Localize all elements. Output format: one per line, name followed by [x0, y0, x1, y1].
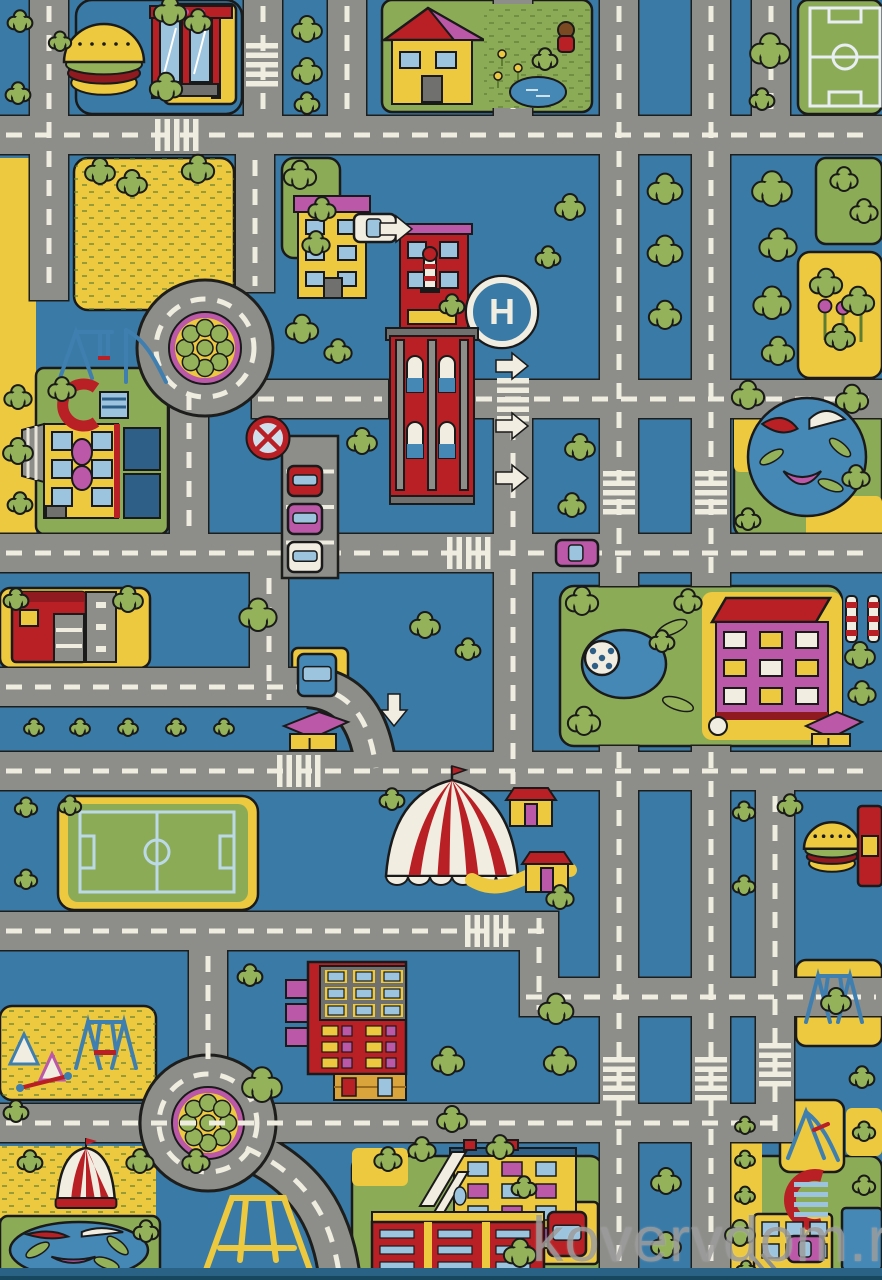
tent-scallop — [430, 876, 452, 885]
tree-center — [315, 203, 329, 217]
crosswalk-bar — [695, 1095, 727, 1101]
window — [306, 272, 324, 286]
tree-center — [249, 607, 268, 626]
tree-center — [219, 723, 229, 733]
burger-stand-2 — [858, 806, 882, 886]
school-roof — [712, 598, 830, 622]
window — [52, 460, 72, 478]
br-blue-patch — [842, 1208, 882, 1270]
seed — [839, 834, 843, 838]
arch-hatch — [794, 1182, 828, 1187]
crosswalk-bar — [315, 755, 321, 787]
crosswalk-bar — [246, 53, 278, 59]
right-yellow-block — [798, 252, 882, 378]
crosswalk-bar — [695, 481, 727, 487]
crosswalk-bar — [603, 1057, 635, 1063]
tree-center — [818, 276, 834, 292]
tent-scallop — [408, 876, 430, 885]
tree-center — [740, 1191, 750, 1201]
stand-window — [862, 836, 878, 856]
tree-center — [292, 168, 308, 184]
tree-center — [125, 177, 140, 192]
seed — [813, 834, 817, 838]
seed — [90, 42, 94, 46]
tree-center — [189, 1155, 203, 1169]
school-window — [760, 632, 782, 648]
boulevard-a-top — [600, 0, 638, 586]
tree-center — [740, 388, 756, 404]
window — [400, 52, 420, 68]
tree-center — [850, 294, 866, 310]
tree-center — [858, 1126, 869, 1137]
crosswalk-bar — [246, 81, 278, 87]
window — [496, 1230, 530, 1238]
tree-center — [294, 322, 310, 338]
window — [328, 972, 344, 981]
teddy-body — [558, 36, 574, 52]
dome — [423, 247, 437, 261]
tree-center — [301, 98, 313, 110]
car-glass — [553, 1225, 581, 1240]
arch-hatch — [794, 1202, 828, 1207]
window — [92, 460, 112, 478]
crosswalk-bar — [759, 1072, 791, 1078]
tree-center — [738, 806, 749, 817]
tree-center — [738, 880, 749, 891]
seed — [78, 42, 82, 46]
crosswalk-bar — [695, 471, 727, 477]
crosswalk-bar — [603, 471, 635, 477]
pilaster — [114, 424, 120, 518]
barrier-stripe — [868, 630, 879, 636]
tree-center — [742, 514, 754, 526]
window — [762, 1222, 779, 1236]
window — [386, 1026, 396, 1036]
tree-center — [542, 252, 554, 264]
arch-hatch — [794, 1192, 828, 1197]
window — [366, 1058, 382, 1068]
tree-center — [54, 36, 65, 47]
tree-center — [837, 173, 851, 187]
barrier-stripe — [846, 630, 857, 636]
tree-center — [386, 794, 398, 806]
tree-center — [445, 1113, 460, 1128]
crosswalk-bar — [155, 119, 161, 151]
tree-center — [20, 874, 31, 885]
helipad-letter: H — [489, 291, 515, 332]
tree-center — [656, 243, 673, 260]
crosswalk-bar — [603, 490, 635, 496]
window — [468, 1184, 488, 1198]
window — [786, 1222, 803, 1236]
barrier-stripe — [868, 602, 879, 608]
window — [536, 1162, 556, 1176]
crosswalk-bar — [603, 500, 635, 506]
tree-center — [446, 300, 458, 312]
tree-center — [121, 593, 136, 608]
annex-window — [378, 1078, 392, 1096]
school-window — [760, 688, 782, 704]
base — [420, 288, 440, 293]
tent-kiosk-1 — [506, 788, 556, 826]
tower — [424, 258, 436, 288]
window — [52, 432, 72, 450]
window — [338, 246, 356, 260]
tree-center — [563, 201, 578, 216]
tree-center — [762, 180, 782, 200]
car-br-house — [788, 1236, 824, 1262]
window — [810, 1222, 827, 1236]
flower-petal — [211, 325, 228, 342]
gable-window — [454, 1187, 466, 1205]
barrier-stripe — [846, 616, 857, 622]
driveway-mark — [96, 602, 106, 608]
arch-window-lower — [439, 378, 455, 392]
ball-patch — [590, 648, 596, 654]
door — [422, 76, 442, 102]
car-glass — [303, 667, 331, 681]
crosswalk-bar — [246, 43, 278, 49]
crosswalk-bar — [695, 1086, 727, 1092]
arch-window-lower — [407, 378, 423, 392]
tree-center — [20, 802, 31, 813]
tree-center — [756, 94, 768, 106]
crosswalk-bar — [497, 397, 529, 403]
base — [390, 496, 474, 504]
tree-center — [553, 891, 567, 905]
flower-petal — [214, 1100, 231, 1117]
crosswalk-bar — [759, 1062, 791, 1068]
tree-center — [659, 1175, 674, 1190]
boat-pond — [748, 398, 866, 516]
car-bottom-patch — [548, 1212, 586, 1256]
tree-center — [681, 595, 695, 609]
tree-center — [856, 1072, 868, 1084]
seed — [114, 42, 118, 46]
tree-center — [853, 649, 868, 664]
tree-center — [565, 499, 579, 513]
rug-product-photo: H kovervdom.ru — [0, 0, 882, 1280]
tree-center — [14, 16, 26, 28]
tree-center — [10, 594, 22, 606]
barrier-stripe — [846, 602, 857, 608]
tent-scallop — [386, 876, 408, 885]
school-window — [796, 688, 818, 704]
crosswalk-bar — [494, 915, 500, 947]
tree-center — [858, 1180, 869, 1191]
tree-center — [833, 331, 848, 346]
window — [322, 1026, 338, 1036]
window — [536, 1184, 556, 1198]
crosswalk-bar — [695, 509, 727, 515]
shed-front — [812, 734, 850, 746]
tree-center — [252, 1076, 272, 1096]
barrier-stripe — [868, 616, 879, 622]
tree-center — [769, 237, 788, 256]
crosswalk-bar — [296, 755, 302, 787]
window — [366, 1026, 382, 1036]
tree-center — [512, 1246, 528, 1262]
tree-center — [158, 80, 174, 96]
tree-center — [418, 619, 433, 634]
crosswalk-bar — [759, 1081, 791, 1087]
tree-center — [552, 1054, 568, 1070]
crosswalk-bar — [193, 119, 199, 151]
window — [92, 488, 112, 506]
ball-patch — [592, 663, 598, 669]
arched-building — [386, 328, 478, 504]
car-glass — [367, 219, 381, 237]
crosswalk-bar — [695, 1067, 727, 1073]
window — [380, 1246, 414, 1254]
kiosk-roof — [522, 852, 572, 864]
window — [384, 989, 400, 998]
tree-center — [573, 441, 588, 456]
stripe — [424, 276, 436, 281]
arch-window — [100, 392, 128, 418]
tree-center — [415, 1143, 429, 1157]
driveway-mark — [96, 646, 106, 652]
driveway-mark — [96, 624, 106, 630]
tree-center — [24, 1156, 36, 1168]
pilaster — [460, 340, 468, 490]
tree-center — [740, 1121, 750, 1131]
seat — [94, 1050, 116, 1055]
window — [92, 432, 112, 450]
tree-center — [93, 165, 108, 180]
window — [386, 1042, 396, 1052]
pilaster — [396, 340, 404, 490]
tree-center — [770, 344, 786, 360]
crosswalk-bar — [695, 490, 727, 496]
crosswalk-bar — [759, 1053, 791, 1059]
play-rug-city-map: H — [0, 0, 882, 1280]
window — [502, 1162, 522, 1176]
flower — [514, 64, 522, 72]
school-window — [724, 660, 746, 676]
rug-edge-shadow — [0, 1276, 882, 1280]
tree-center — [309, 237, 323, 251]
step — [46, 506, 66, 518]
blue-lot — [124, 428, 160, 470]
ball-patch — [608, 648, 614, 654]
window — [384, 1006, 400, 1015]
parked-car-magenta — [288, 504, 322, 534]
window — [342, 1058, 352, 1068]
burger-icon-2 — [804, 822, 860, 872]
crosswalk-bar — [497, 388, 529, 394]
school-window — [724, 632, 746, 648]
window — [438, 1230, 472, 1238]
tree-center — [763, 295, 782, 314]
tree-center — [740, 1155, 750, 1165]
tree-center — [190, 162, 206, 178]
tree-center — [11, 445, 26, 460]
tree-center — [29, 723, 39, 733]
tree-center — [844, 392, 860, 408]
tree-center — [657, 308, 673, 324]
bus-mid-patch — [298, 654, 336, 696]
crosswalk-bar — [457, 537, 463, 569]
window — [356, 972, 372, 981]
tree-center — [355, 435, 370, 450]
window — [342, 1042, 352, 1052]
door-oval — [72, 439, 92, 465]
seed — [126, 42, 130, 46]
tulip — [819, 300, 832, 313]
crosswalk-bar — [466, 537, 472, 569]
window — [436, 52, 456, 68]
crosswalk-bar — [603, 509, 635, 515]
school-base — [716, 712, 828, 720]
window — [342, 1026, 352, 1036]
garden-pond — [510, 77, 566, 107]
burger-icon — [64, 24, 144, 95]
tree-center — [547, 1001, 564, 1018]
school-window — [796, 632, 818, 648]
school-window — [760, 660, 782, 676]
window — [366, 1042, 382, 1052]
crosswalk-bar — [484, 915, 490, 947]
shed-front — [290, 734, 336, 750]
window — [384, 972, 400, 981]
tree-center — [162, 4, 178, 20]
seed — [830, 834, 834, 838]
shop-door — [324, 278, 342, 298]
arch-window-lower — [439, 444, 455, 458]
crosswalk-bar — [184, 119, 190, 151]
crosswalk-bar — [695, 1057, 727, 1063]
parked-car-red — [288, 466, 322, 496]
crosswalk-bar — [476, 537, 482, 569]
annex-window — [342, 1078, 356, 1096]
tree-center — [12, 88, 24, 100]
door-oval — [72, 466, 92, 490]
car-glass — [799, 1241, 811, 1257]
chimney — [464, 1140, 476, 1150]
tent-skirt — [56, 1198, 117, 1208]
crosswalk-bar — [759, 1043, 791, 1049]
window — [328, 1006, 344, 1015]
crosswalk-bar — [603, 481, 635, 487]
car-glass — [293, 513, 317, 523]
tree-center — [123, 723, 133, 733]
tree-center — [171, 723, 181, 733]
seesaw-end — [64, 1072, 72, 1080]
flower — [494, 72, 502, 80]
crosswalk-bar — [277, 755, 283, 787]
tree-center — [11, 391, 25, 405]
crosswalk-bar — [603, 1086, 635, 1092]
tree-center — [829, 995, 844, 1010]
tree-center — [539, 54, 551, 66]
roundabout-top — [137, 280, 273, 416]
crosswalk-bar — [465, 915, 471, 947]
tree-center — [659, 1239, 674, 1254]
station-window — [20, 610, 38, 626]
crosswalk-bar — [497, 407, 529, 413]
crosswalk-bar — [603, 1095, 635, 1101]
tree-center — [518, 1182, 530, 1194]
window — [468, 1162, 488, 1176]
parked-car-white — [288, 542, 322, 572]
kiosk-roof — [506, 788, 556, 800]
small-ball — [709, 717, 727, 735]
arch-window-lower — [407, 444, 423, 458]
kiosk-door — [525, 804, 537, 826]
tree-center — [855, 687, 869, 701]
blue-lot — [124, 474, 160, 518]
tree-center — [244, 970, 256, 982]
car-glass — [293, 551, 317, 561]
tree-center — [75, 723, 85, 733]
lighthouse — [420, 247, 440, 293]
crosswalk-bar — [447, 537, 453, 569]
window — [380, 1230, 414, 1238]
tree-center — [857, 205, 871, 219]
crosswalk-bar — [287, 755, 293, 787]
window — [322, 1042, 338, 1052]
seed — [102, 42, 106, 46]
crosswalk-bar — [165, 119, 171, 151]
tree-center — [10, 1106, 22, 1118]
window — [356, 989, 372, 998]
crosswalk-bar — [503, 915, 509, 947]
tree-center — [300, 65, 315, 80]
tree-center — [733, 1227, 748, 1242]
crosswalk-bar — [174, 119, 180, 151]
tree-center — [784, 800, 796, 812]
window — [356, 1006, 372, 1015]
tree-center — [440, 1054, 456, 1070]
tree-center — [493, 1141, 507, 1155]
window — [440, 242, 458, 258]
tree-center — [64, 800, 75, 811]
tree-center — [140, 1226, 152, 1238]
tree-center — [576, 714, 592, 730]
stripe — [424, 264, 436, 269]
crosswalk-bar — [306, 755, 312, 787]
crosswalk-bar — [603, 1067, 635, 1073]
crosswalk-bar — [246, 62, 278, 68]
tree-center — [462, 644, 474, 656]
tree-center — [656, 181, 673, 198]
flower-center — [197, 340, 213, 356]
tree-center — [55, 383, 69, 397]
flower — [498, 50, 506, 58]
crosswalk-bar — [695, 1076, 727, 1082]
seed — [822, 834, 826, 838]
crosswalk-bar — [475, 915, 481, 947]
window — [438, 1246, 472, 1254]
car-glass — [293, 475, 317, 485]
tree-center — [656, 636, 668, 648]
seed — [847, 834, 851, 838]
tree-center — [574, 594, 590, 610]
pilaster — [428, 340, 436, 490]
ball-patch — [599, 655, 605, 661]
seesaw-end — [16, 1084, 24, 1092]
kiosk-door — [541, 868, 553, 892]
tree-center — [14, 498, 26, 510]
window — [440, 272, 458, 288]
swing-seat — [98, 356, 110, 360]
tree-center — [849, 471, 863, 485]
school-window — [796, 660, 818, 676]
ball-patch — [606, 663, 612, 669]
car-glass — [569, 545, 583, 561]
tree-center — [191, 15, 205, 29]
